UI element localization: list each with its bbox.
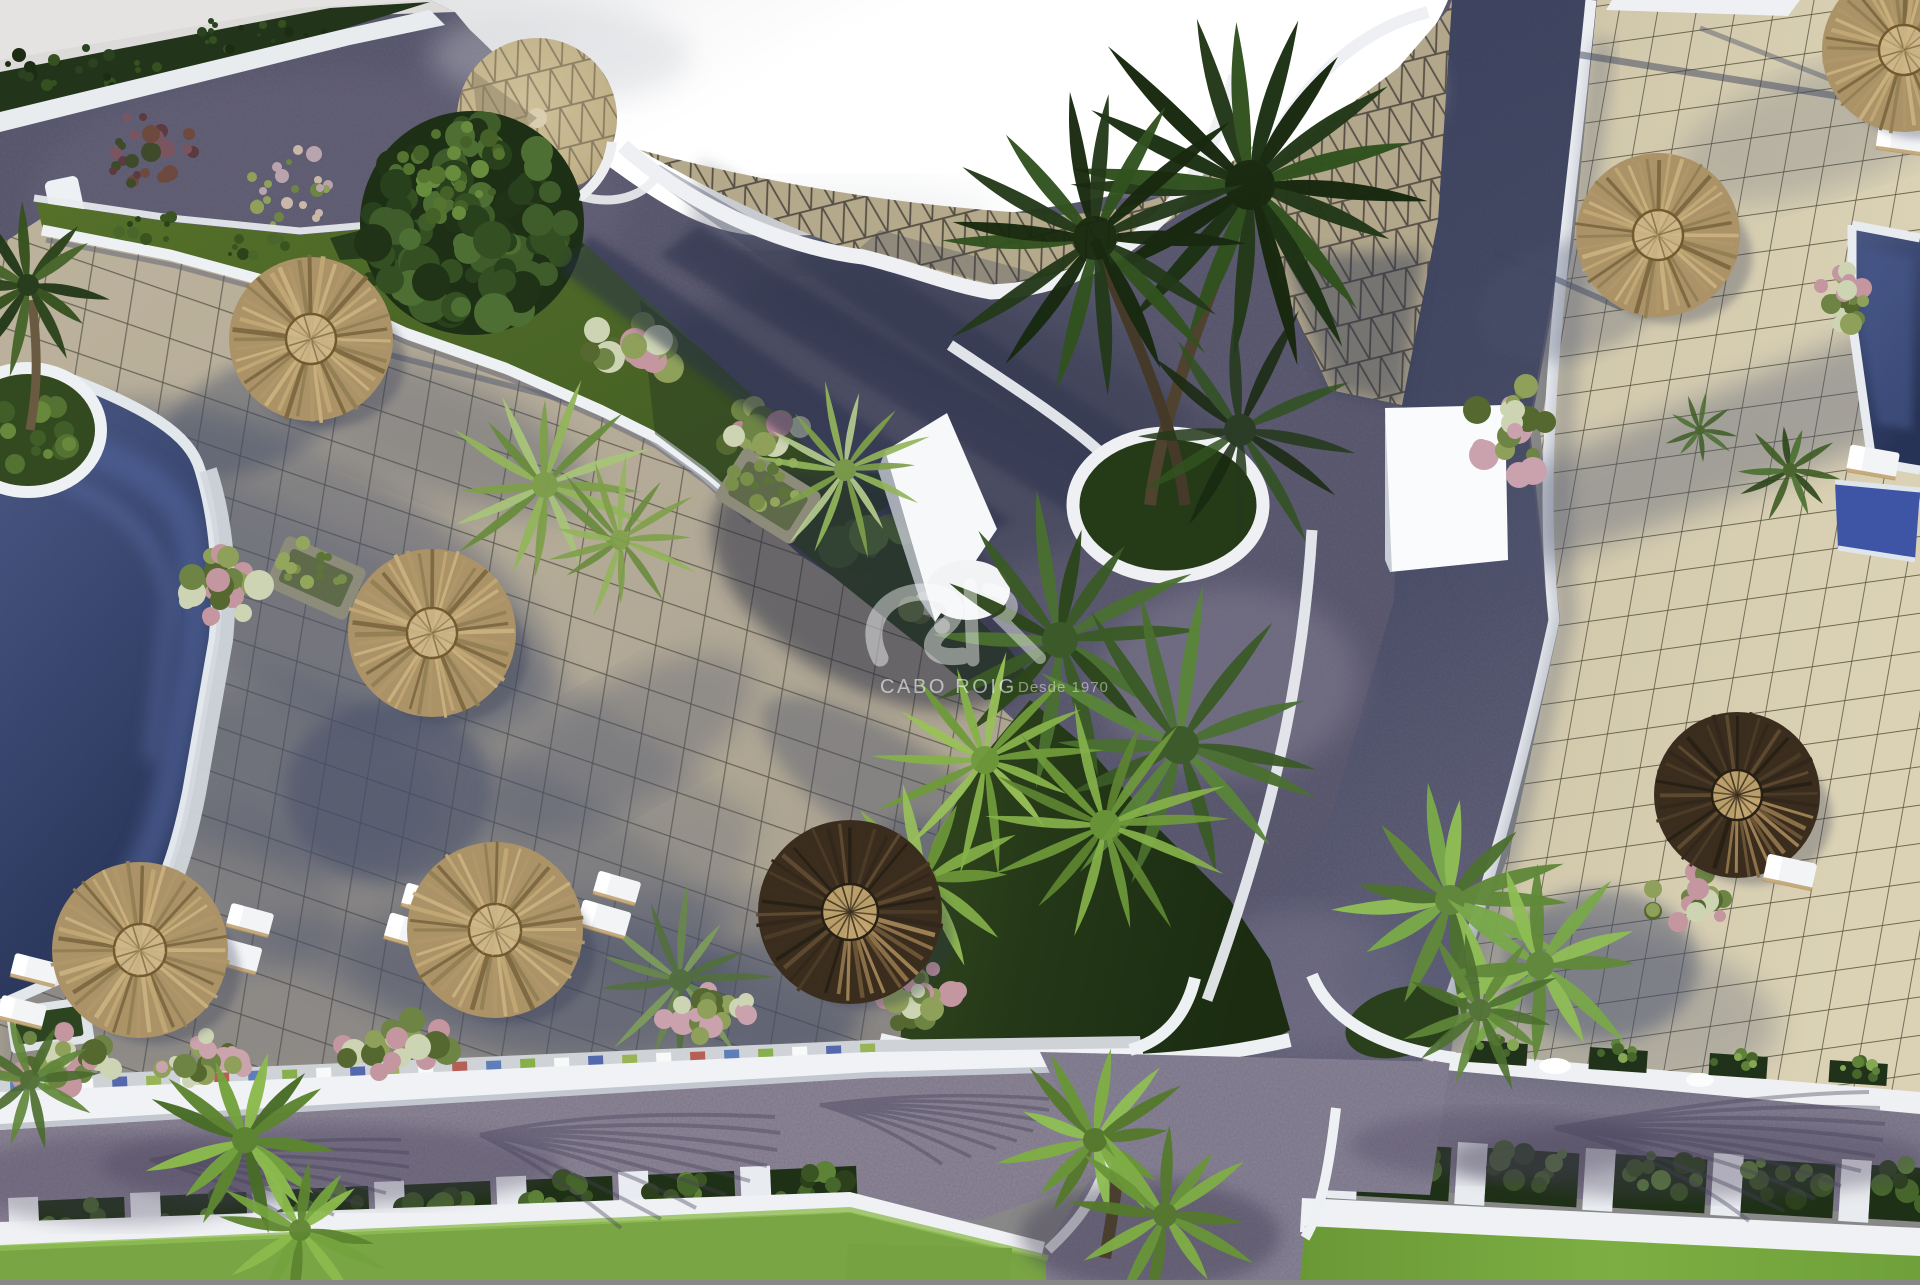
svg-text:CABO ROIG: CABO ROIG <box>880 676 1017 698</box>
svg-text:Desde 1970: Desde 1970 <box>1018 679 1109 696</box>
